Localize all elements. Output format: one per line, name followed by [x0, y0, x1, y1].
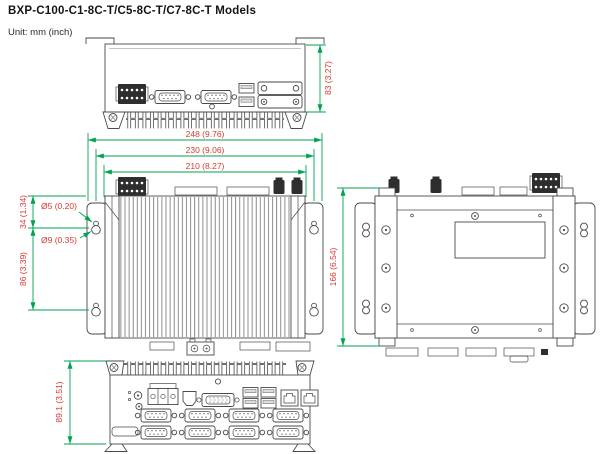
dim-label-hole-large: Ø9 (0.35) — [41, 235, 77, 245]
dim-label-rear-height: 166 (6.54) — [328, 247, 338, 286]
mount-ear-tab-right — [296, 38, 324, 44]
edge-connector — [500, 187, 527, 195]
dim-label-overall-width: 248 (9.76) — [186, 129, 225, 139]
terminal-block-connector — [116, 177, 148, 197]
dim-label-bracket-width: 230 (9.06) — [186, 145, 225, 155]
foot-left — [105, 444, 127, 452]
lan-port — [281, 390, 298, 406]
antenna-connector — [431, 177, 442, 194]
connector-detail — [541, 349, 548, 355]
edge-connector — [428, 348, 458, 356]
serial-port — [267, 409, 308, 422]
serial-port — [267, 426, 308, 439]
front-view — [87, 177, 323, 355]
top-view — [86, 38, 324, 129]
dim-label-top-height: 83 (3.27) — [323, 61, 333, 95]
dimension-drawing: 83 (3.27) 248 (9.76) 230 (9.06) 210 (8.2… — [0, 0, 600, 454]
serial-port — [179, 409, 220, 422]
dim-label-body-width: 210 (8.27) — [186, 161, 225, 171]
datasheet-page: BXP-C100-C1-8C-T/C5-8C-T/C7-8C-T Models … — [0, 0, 600, 454]
foot-right — [293, 444, 315, 452]
access-plate — [258, 82, 302, 108]
dim-label-hole-spacing: 86 (3.39) — [18, 252, 28, 286]
heatsink-fins — [119, 197, 291, 337]
terminal-block-connector — [116, 84, 148, 104]
antenna-connector — [292, 178, 303, 195]
serial-port — [179, 426, 220, 439]
dim-top-height: 83 (3.27) — [306, 45, 333, 112]
chassis-screw — [210, 104, 215, 109]
dim-label-front-panel-height: 89.1 (3.51) — [54, 381, 64, 422]
dim-label-hole-small: Ø5 (0.20) — [41, 201, 77, 211]
usb-port — [243, 388, 258, 398]
usb-port — [239, 97, 254, 107]
chassis-screw — [215, 379, 220, 384]
edge-connector — [504, 348, 534, 356]
power-connector — [187, 339, 214, 355]
mount-ear-right — [573, 203, 595, 334]
vga-port — [197, 394, 239, 407]
usb-port — [239, 84, 254, 94]
serial-port — [135, 409, 176, 422]
edge-connector — [150, 342, 174, 350]
edge-connector — [175, 187, 217, 195]
usb-port — [261, 388, 276, 398]
usb-port — [243, 399, 258, 409]
serial-port — [135, 426, 176, 439]
lan-port — [301, 390, 318, 406]
mount-ear-left — [355, 203, 377, 334]
dim-label-hole-offset: 34 (1.34) — [18, 195, 28, 229]
edge-connector — [386, 348, 418, 356]
serial-port — [195, 91, 236, 104]
serial-port — [149, 91, 190, 104]
antenna-connector — [274, 178, 285, 195]
edge-connector — [466, 348, 496, 356]
bottom-view — [105, 361, 318, 452]
usb-port — [261, 399, 276, 409]
edge-connector — [462, 187, 494, 195]
heatsink-fin-row — [106, 361, 314, 375]
connector-detail — [510, 356, 528, 362]
mount-hole-dimensions: 34 (1.34) 86 (3.39) Ø5 (0.20) Ø9 (0.35) — [18, 195, 92, 310]
hdmi-port — [183, 392, 196, 406]
edge-connector — [240, 342, 270, 350]
serial-port — [223, 409, 264, 422]
dim-bottom-height: 89.1 (3.51) — [54, 361, 106, 444]
label-area — [455, 222, 545, 258]
heatsink-fin-row — [103, 112, 307, 129]
serial-port — [223, 426, 264, 439]
rear-view — [355, 173, 595, 362]
edge-connector — [227, 187, 269, 195]
edge-connector — [276, 342, 310, 351]
mount-ear-tab-left — [86, 38, 114, 44]
